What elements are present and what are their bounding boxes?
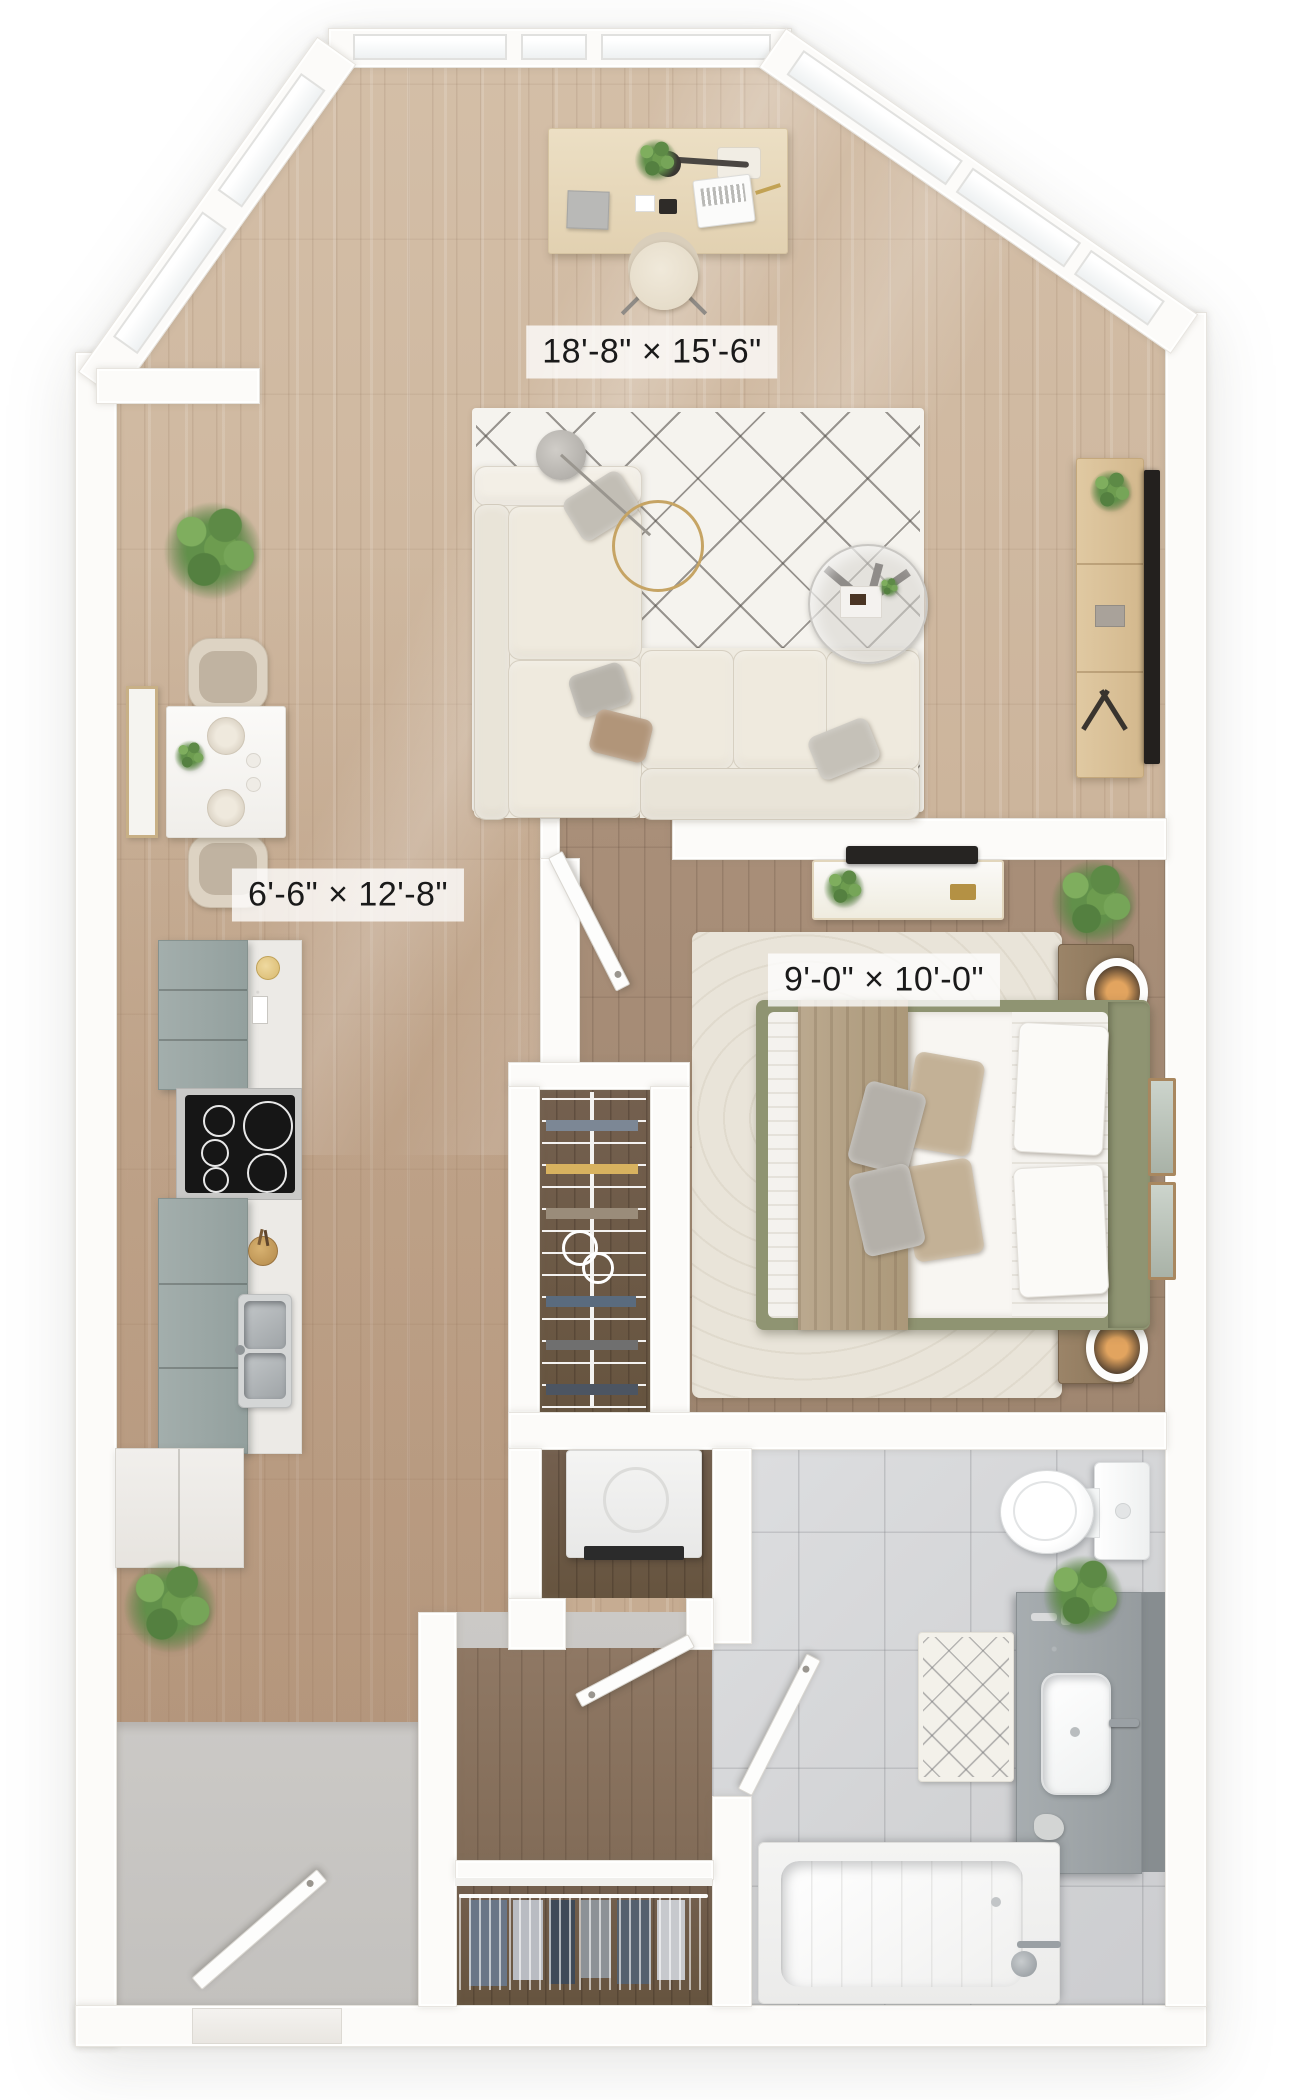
coffee-table-plant (878, 576, 900, 598)
cup (246, 777, 261, 792)
coaster-white (635, 195, 655, 212)
cabinet-seam (178, 1449, 180, 1567)
chair-seat-pad (199, 651, 257, 703)
bedroom-bathroom-wall (508, 1412, 1167, 1450)
wire-closet (538, 1088, 650, 1412)
tv-screen (1144, 470, 1160, 764)
table-centerpiece-plant (173, 739, 207, 773)
sink-drain (1070, 1727, 1080, 1737)
door-knob (801, 1664, 810, 1673)
door-knob (305, 1878, 315, 1888)
tub-faucet-bar (1017, 1941, 1061, 1948)
wall-mirror-lower (1148, 1182, 1176, 1280)
console-book (1095, 605, 1125, 627)
kitchen-sink (238, 1294, 292, 1408)
sink-faucet (1109, 1719, 1139, 1727)
outer-wall-left (75, 352, 117, 2047)
window-top-2 (521, 34, 587, 60)
tub-drain (991, 1897, 1001, 1907)
coaster-dark (659, 199, 677, 214)
dresser-tray-gold (950, 884, 976, 900)
hanging-closet (455, 1878, 712, 2005)
vanity-plant (1040, 1552, 1126, 1638)
range-frame (176, 1088, 302, 1200)
coffee-table (806, 542, 926, 662)
bed-pillow-white (1013, 1164, 1110, 1299)
vessel-sink (1041, 1673, 1111, 1795)
folded-clothes (546, 1120, 638, 1131)
hanging-closet-lip-wall (455, 1860, 714, 1880)
place-setting-plate (207, 789, 245, 827)
cabinet-seam (159, 1283, 247, 1285)
console-shelf-seam (1077, 671, 1143, 673)
fruit-bowl (256, 956, 280, 980)
dimension-label-living-room: 18'-8" × 15'-6" (526, 326, 777, 379)
sink-faucet (235, 1345, 245, 1355)
cabinet-seam (159, 1039, 247, 1041)
bathtub (758, 1842, 1060, 2004)
utensil-crock (248, 1236, 278, 1266)
plan-wrapper: 18'-8" × 15'-6" 6'-6" × 12'-8" 9'-0" × 1… (0, 0, 1300, 2100)
laundry-left-wall (508, 1448, 542, 1614)
bed-frame (756, 1000, 1150, 1330)
floor-plan-scene: 18'-8" × 15'-6" 6'-6" × 12'-8" 9'-0" × 1… (0, 0, 1300, 2100)
wall-mirror-upper (1148, 1078, 1176, 1176)
wall-art (126, 686, 158, 838)
cooktop (185, 1095, 295, 1193)
dresser-tv (846, 846, 978, 864)
window-top-3 (601, 34, 771, 60)
hanger-wires (459, 1894, 708, 1990)
sink-basin (244, 1353, 286, 1399)
kitchen-cabinet-upper (158, 940, 248, 1090)
closet-right-wall (650, 1086, 690, 1414)
washer-door-ring (603, 1467, 669, 1533)
closet-shelf-edge (455, 1878, 712, 1886)
bed-pillow-white (1013, 1022, 1110, 1157)
sofa-back-left (474, 504, 510, 820)
laundry-bottom-wall-left (508, 1598, 566, 1650)
dimension-label-bedroom: 9'-0" × 10'-0" (768, 954, 1000, 1007)
folded-clothes (546, 1340, 638, 1350)
door-knob (613, 970, 622, 979)
bath-mat-pattern (923, 1637, 1009, 1777)
dining-alcove-wall-stub (96, 368, 260, 404)
console-decor-x (1099, 689, 1128, 731)
bathroom-left-wall-lower (712, 1796, 752, 2007)
hanger-loop (582, 1252, 614, 1284)
place-setting-plate (207, 717, 245, 755)
laptop-keyboard (700, 183, 746, 206)
soap-dish-decor (1034, 1814, 1064, 1840)
bath-mat (918, 1632, 1014, 1782)
door-knob (587, 1690, 596, 1699)
utility-zone-left-wall (418, 1612, 457, 2007)
console-plant (1088, 468, 1134, 514)
dimension-label-kitchen: 6'-6" × 12'-8" (232, 869, 464, 922)
burner (203, 1167, 229, 1193)
sofa-back-bottom (640, 768, 920, 820)
kitchen-cabinet-upper (158, 1198, 248, 1454)
washer-dryer (566, 1450, 702, 1558)
burner (243, 1101, 293, 1151)
outlet (252, 996, 268, 1024)
dresser-plant (822, 866, 866, 910)
cabinet-seam (159, 1367, 247, 1369)
floor-lamp-ring (612, 500, 704, 592)
dining-table (166, 706, 286, 838)
dining-chair-north (188, 638, 268, 712)
chair-seat (630, 242, 698, 310)
folded-clothes (546, 1296, 636, 1307)
toilet-tank (1094, 1462, 1150, 1560)
folded-clothes (546, 1208, 638, 1219)
hall-wood-floor (455, 1648, 712, 1860)
cup (246, 753, 261, 768)
toilet-seat-line (1013, 1481, 1077, 1541)
sink-basin (244, 1301, 286, 1349)
console-shelf-seam (1077, 563, 1143, 565)
dining-plant (160, 498, 265, 603)
entry-threshold (192, 2008, 342, 2044)
cabinet-seam (159, 989, 247, 991)
bathroom-left-wall-upper (712, 1448, 752, 1644)
kitchen-end-cabinet (115, 1448, 244, 1568)
laptop (692, 174, 755, 229)
flush-button (1115, 1503, 1131, 1519)
folded-clothes (546, 1384, 638, 1395)
entry-floor (115, 1722, 418, 2005)
vanity-backsplash (1140, 1592, 1165, 1872)
bathtub-basin (781, 1861, 1023, 1987)
folded-clothes (546, 1164, 638, 1174)
desk-plant (633, 137, 679, 183)
outer-wall-top (328, 28, 792, 68)
kitchen-plant (120, 1556, 220, 1656)
closet-left-wall (508, 1086, 540, 1414)
tray-item (850, 594, 866, 605)
window-top-1 (353, 34, 507, 60)
toilet-bowl (1000, 1470, 1094, 1554)
desk-pen (755, 183, 781, 195)
burner (201, 1139, 229, 1167)
bedroom-corner-plant (1048, 856, 1140, 948)
washer-vent-slot (584, 1546, 684, 1560)
burner (247, 1153, 287, 1193)
desk-chair (622, 232, 708, 328)
sofa-seat-cushion (640, 650, 734, 770)
burner (203, 1105, 235, 1137)
headboard (1108, 1002, 1150, 1328)
notebook (566, 190, 609, 229)
tub-valve (1011, 1951, 1037, 1977)
